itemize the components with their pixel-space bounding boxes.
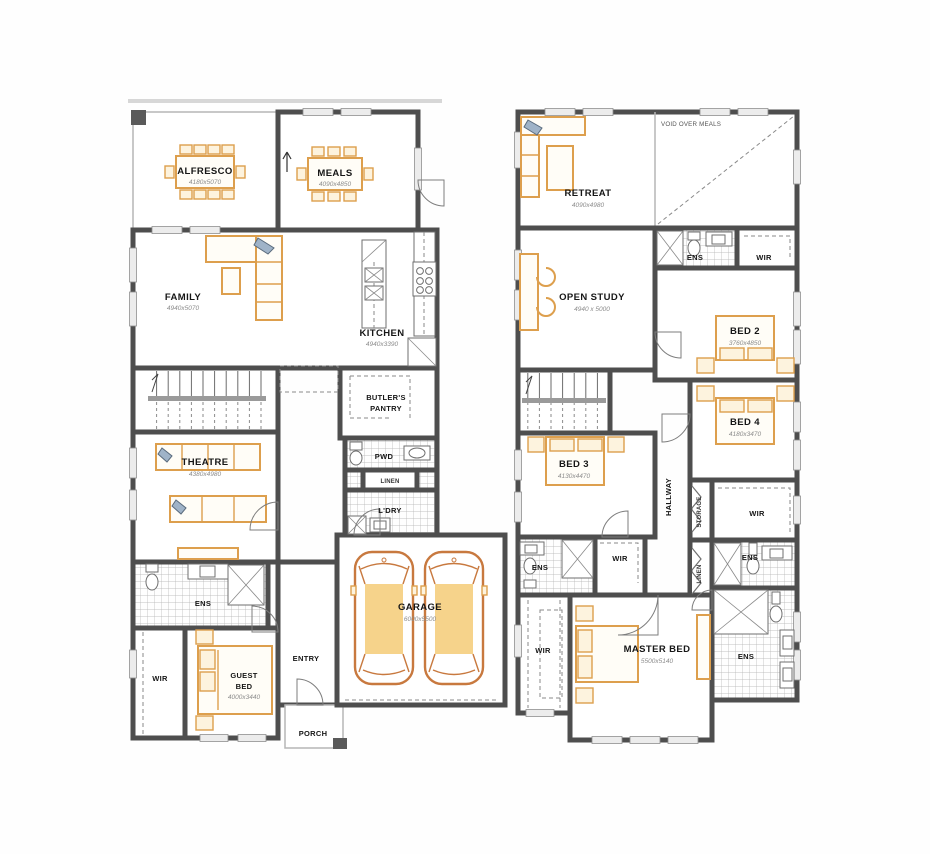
retreat-dim: 4090x4980 [572,202,605,209]
ens-bed4-label: ENS [742,553,758,562]
wir-bed2-label: WIR [756,253,772,262]
wir-bed3-label: WIR [612,554,628,563]
theatre-label: THEATRE [182,457,229,468]
butlers-pantry-label-1: BUTLER'S [366,393,406,402]
ens-bed2-label: ENS [687,253,703,262]
stairs-ground [148,366,338,429]
wir-master-label: WIR [535,646,551,655]
linen-first-label: LINEN [697,565,703,584]
master-bed-dim: 5500x5140 [641,658,674,665]
porch-post [333,738,347,749]
garage-label: GARAGE [398,602,442,613]
ground-floor-plan: ALFRESCO 4180x5070 MEALS 4090x4850 FAMIL… [128,99,505,749]
bed4-dim: 4180x3470 [729,431,762,438]
alfresco-post [131,110,146,125]
theatre-dim: 4380x4980 [189,471,222,478]
hallway-label: HALLWAY [664,478,673,516]
meals-dim: 4090x4850 [319,181,352,188]
open-study-dim: 4940 x 5000 [574,306,610,313]
wir-ground-label: WIR [152,674,168,683]
room-wir-bed2 [737,228,797,268]
ens-master-label: ENS [738,652,754,661]
alfresco-dim: 4180x5070 [189,179,222,186]
entry-label: ENTRY [293,654,320,663]
pwd-label: PWD [375,452,394,461]
family-dim: 4940x5070 [167,305,200,312]
floor-plan-page: ALFRESCO 4180x5070 MEALS 4090x4850 FAMIL… [0,0,930,854]
guest-bed-dim: 4000x3440 [228,694,261,701]
ens-bed3-label: ENS [532,563,548,572]
stairs-first [522,373,606,429]
room-entry [278,562,337,705]
ens-ground-label: ENS [195,599,211,608]
porch-label: PORCH [299,729,328,738]
bed3-dim: 4130x4470 [558,473,591,480]
guest-bed-label-2: BED [236,682,253,691]
wir-bed4-label: WIR [749,509,765,518]
guest-bed-label-1: GUEST [230,671,257,680]
roof-line [128,99,442,103]
bed2-label: BED 2 [730,326,760,337]
open-study-label: OPEN STUDY [559,292,625,303]
bed3-label: BED 3 [559,459,589,470]
master-bed-label: MASTER BED [624,644,691,655]
bed2-dim: 3760x4850 [729,340,762,347]
kitchen-dim: 4940x3390 [366,341,399,348]
laundry-label: L'DRY [378,506,401,515]
retreat-label: RETREAT [565,188,612,199]
storage-label: STORAGE [697,497,703,528]
meals-label: MEALS [317,168,352,179]
butlers-pantry-label-2: PANTRY [370,404,402,413]
void-over-meals-label: VOID OVER MEALS [661,121,721,128]
linen-cell-left [345,470,363,490]
alfresco-label: ALFRESCO [177,166,232,177]
floor-plan-drawing: ALFRESCO 4180x5070 MEALS 4090x4850 FAMIL… [0,0,930,854]
first-floor-plan: RETREAT 4090x4980 VOID OVER MEALS ENS WI… [515,109,801,744]
guest-bed-furniture [196,630,272,730]
kitchen-label: KITCHEN [359,328,404,339]
bed4-label: BED 4 [730,417,760,428]
linen-cell-right [417,470,437,490]
linen-label: LINEN [381,479,400,485]
family-label: FAMILY [165,292,202,303]
garage-dim: 6000x5500 [404,616,437,623]
kitchen-island [362,240,386,328]
room-wir-bed3 [595,537,645,595]
room-wir-ground [133,628,185,738]
room-butlers-pantry [340,368,437,438]
